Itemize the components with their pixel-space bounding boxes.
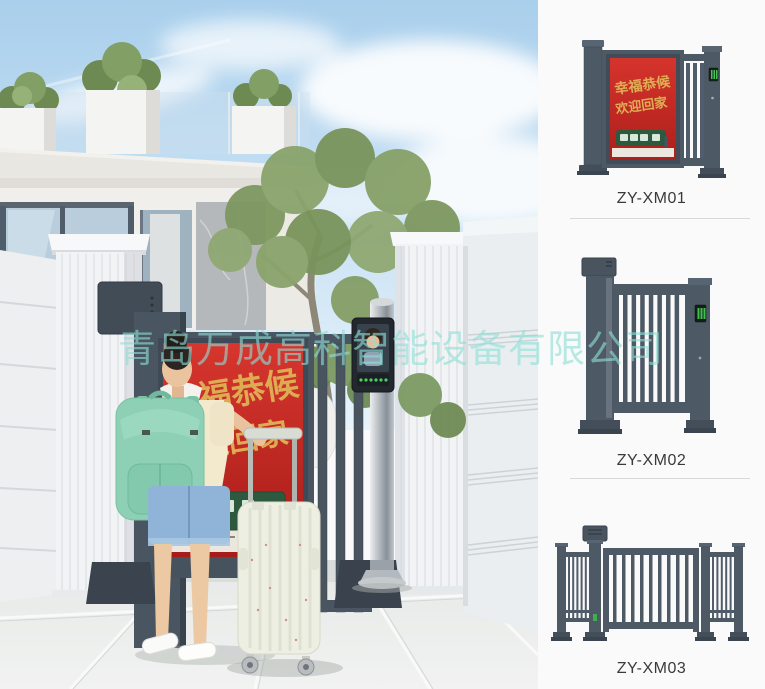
suitcase-handle[interactable] xyxy=(244,428,302,439)
gate-render-zy-xm01: 幸福恭候 欢迎回家 xyxy=(576,38,726,178)
denim-shorts xyxy=(148,486,230,546)
gate-render-zy-xm02 xyxy=(576,250,726,445)
product-label-zy-xm01: ZY-XM01 xyxy=(538,190,765,208)
lifestyle-photo: 幸福恭候 欢迎回家 xyxy=(0,0,538,689)
divider xyxy=(570,478,750,479)
release-latch xyxy=(593,614,597,621)
left-wall xyxy=(0,250,58,602)
scene-photo: 幸福恭候 欢迎回家 xyxy=(0,0,538,689)
access-reader-icon xyxy=(709,68,718,81)
access-reader-icon xyxy=(695,305,706,322)
product-label-zy-xm02: ZY-XM02 xyxy=(538,452,765,470)
face-recognition-terminal[interactable] xyxy=(352,318,394,392)
product-panel: 幸福恭候 欢迎回家 ZY-XM0 xyxy=(538,0,765,689)
product-label-zy-xm03: ZY-XM03 xyxy=(538,660,765,678)
right-wall xyxy=(463,216,538,632)
gate-motor-box xyxy=(582,258,616,276)
gate-render-zy-xm03 xyxy=(551,514,751,654)
divider xyxy=(570,218,750,219)
product-showcase: 幸福恭候 欢迎回家 xyxy=(0,0,765,689)
hair-bun xyxy=(165,331,187,353)
